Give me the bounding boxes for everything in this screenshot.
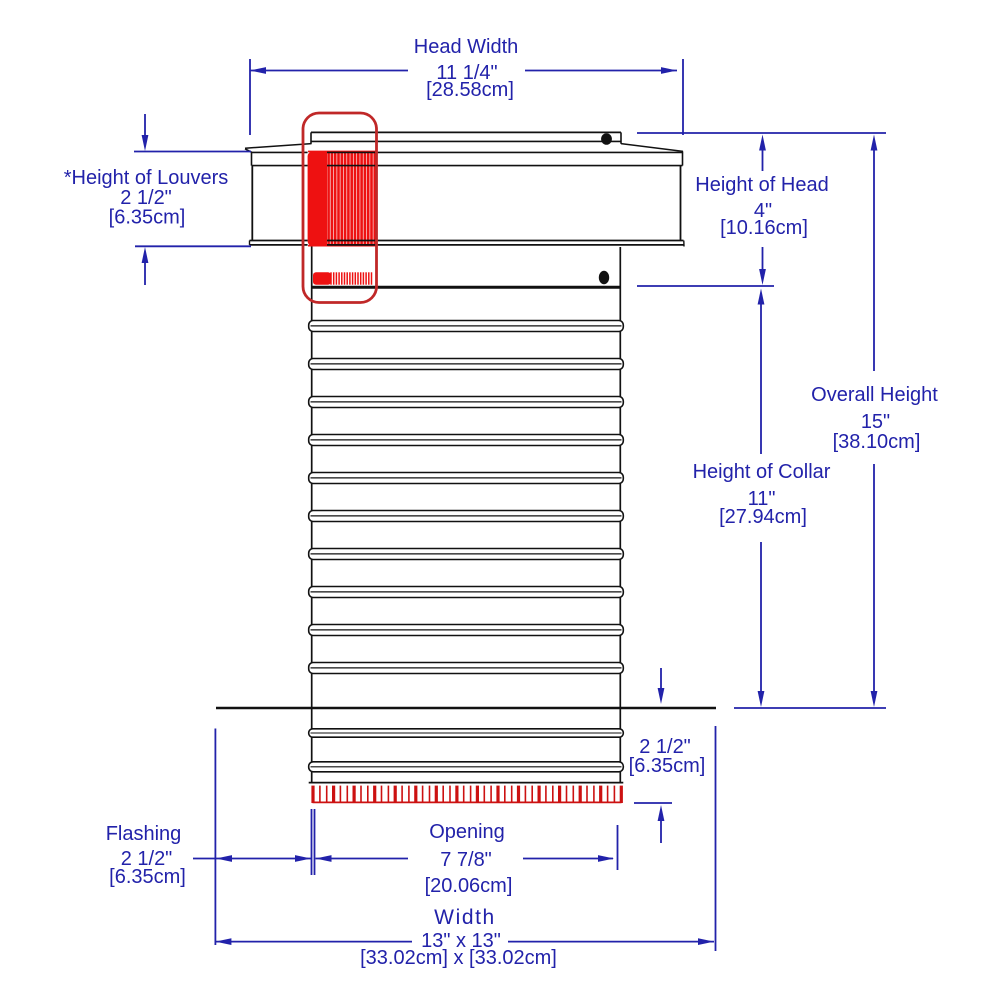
svg-text:Height of Head: Height of Head xyxy=(695,174,828,196)
svg-text:[6.35cm]: [6.35cm] xyxy=(109,866,186,888)
svg-text:Flashing: Flashing xyxy=(106,823,182,845)
svg-text:[10.16cm]: [10.16cm] xyxy=(720,217,808,239)
svg-text:[27.94cm]: [27.94cm] xyxy=(719,506,807,528)
svg-text:15": 15" xyxy=(861,411,890,433)
svg-text:[20.06cm]: [20.06cm] xyxy=(425,875,513,897)
svg-text:Head Width: Head Width xyxy=(414,36,519,58)
svg-text:Width: Width xyxy=(434,906,496,929)
svg-text:[38.10cm]: [38.10cm] xyxy=(833,431,921,453)
svg-text:*Height of Louvers: *Height of Louvers xyxy=(64,167,229,189)
svg-text:Opening: Opening xyxy=(429,821,505,843)
svg-text:[6.35cm]: [6.35cm] xyxy=(109,207,186,229)
svg-text:[6.35cm]: [6.35cm] xyxy=(629,755,706,777)
svg-text:[28.58cm]: [28.58cm] xyxy=(426,79,514,101)
svg-text:[33.02cm] x [33.02cm]: [33.02cm] x [33.02cm] xyxy=(360,947,557,969)
svg-text:Height of Collar: Height of Collar xyxy=(693,461,831,483)
svg-text:Overall Height: Overall Height xyxy=(811,384,938,406)
svg-text:7 7/8": 7 7/8" xyxy=(440,849,492,871)
